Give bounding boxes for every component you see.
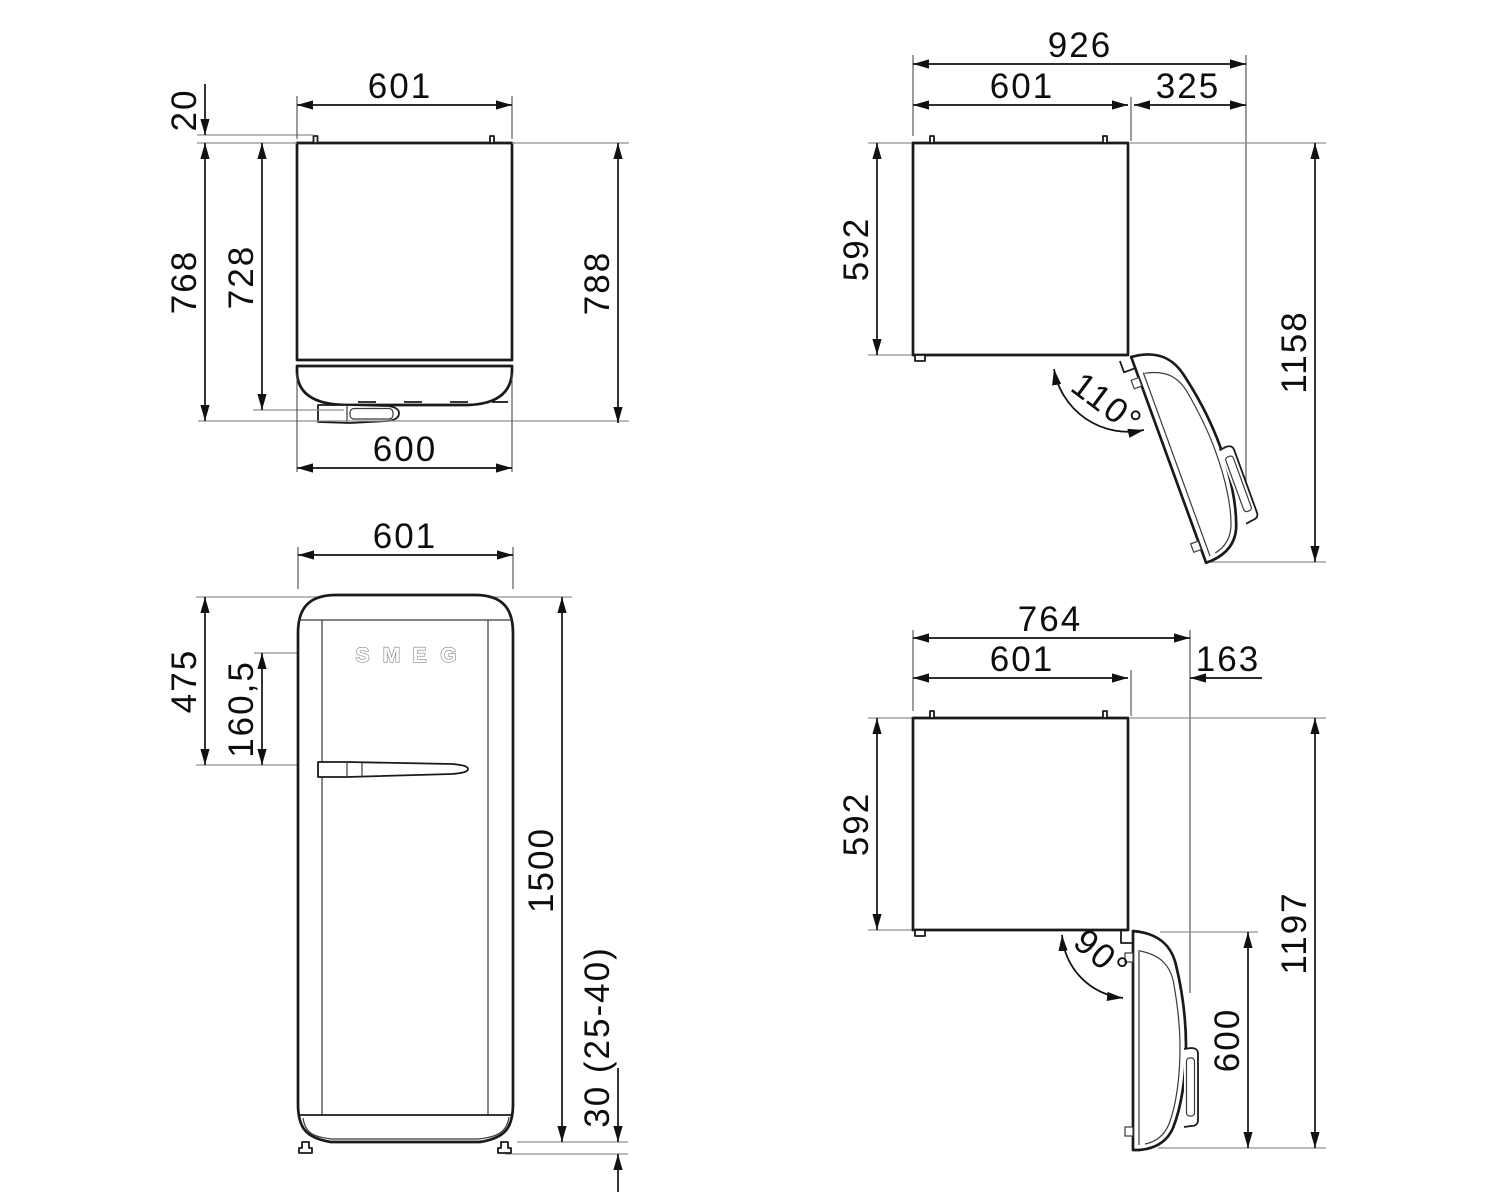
- dim-depth-with-door: 768: [165, 250, 204, 314]
- view-front: S M E G 601 475 160,5 1500 30 (25-40): [165, 517, 628, 1192]
- technical-drawing-canvas: 601 20 768 728 788 600 110° 926 601 325: [0, 0, 1500, 1200]
- view-top-closed: 601 20 768 728 788 600: [165, 67, 629, 472]
- angle-label-90: 90°: [1066, 921, 1136, 989]
- logo-letter-m: M: [383, 644, 402, 667]
- dim-overall-depth-90: 1197: [1275, 891, 1314, 974]
- dim-height: 1500: [522, 827, 561, 913]
- logo-letter-g: G: [440, 644, 457, 667]
- closed-door-outline: [297, 366, 512, 405]
- dim-top-to-handle: 475: [165, 649, 204, 713]
- door-open-110: [1120, 335, 1267, 567]
- wall-spacer-pin-left: [314, 136, 318, 143]
- dim-door-side-90: 163: [1196, 640, 1260, 679]
- dim-feet-height: 30 (25-40): [578, 946, 617, 1127]
- dim-depth-body: 728: [222, 245, 261, 309]
- dim-body-width-90: 601: [990, 640, 1054, 679]
- dimension-diagram: 601 20 768 728 788 600 110° 926 601 325: [0, 0, 1500, 1200]
- dim-logo-to-handle: 160,5: [222, 660, 261, 758]
- cabinet-top-outline-110: [913, 143, 1128, 355]
- fridge-front-outline: [298, 595, 513, 1142]
- wall-spacer-pin-left-110: [930, 136, 934, 143]
- cabinet-top-outline-90: [913, 718, 1128, 930]
- wall-spacer-pin-left-90: [930, 711, 934, 718]
- dim-depth-with-handle: 788: [578, 251, 617, 315]
- dim-top-width: 601: [368, 67, 432, 106]
- dim-body-width-110: 601: [990, 67, 1054, 106]
- handle-front-view: [318, 762, 468, 777]
- wall-spacer-pin-right-90: [1103, 711, 1107, 718]
- foot-right: [498, 1142, 511, 1153]
- wall-spacer-pin-right: [490, 136, 494, 143]
- dim-body-depth-90: 592: [837, 792, 876, 856]
- wall-spacer-pin-right-110: [1103, 136, 1107, 143]
- cabinet-top-outline: [297, 143, 512, 360]
- dim-front-view-width: 601: [373, 517, 437, 556]
- dim-front-width: 600: [373, 430, 437, 469]
- view-top-door-110: 110° 926 601 325 592 1158: [837, 26, 1326, 567]
- dim-overall-width-110: 926: [1048, 26, 1112, 65]
- dim-rear-gap: 20: [165, 89, 204, 132]
- view-top-door-90: 90° 764 601 163 592 600 1197: [837, 600, 1326, 1150]
- foot-nub-110: [915, 355, 925, 361]
- dim-overall-width-90: 764: [1018, 600, 1082, 639]
- dim-door-width-90: 600: [1208, 1008, 1247, 1072]
- logo-letter-e: E: [412, 644, 427, 667]
- dim-door-side-110: 325: [1156, 67, 1220, 106]
- logo-letter-s: S: [355, 644, 370, 667]
- dim-overall-depth-110: 1158: [1275, 310, 1314, 393]
- foot-nub-90: [915, 930, 925, 936]
- foot-left: [299, 1142, 312, 1153]
- handle-top-view: [318, 405, 399, 423]
- dim-body-depth-110: 592: [837, 217, 876, 281]
